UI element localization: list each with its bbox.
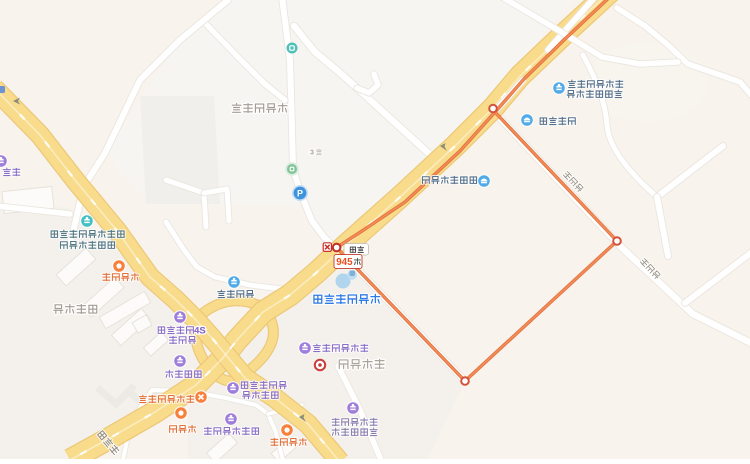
svg-text:4S: 4S bbox=[194, 325, 206, 336]
svg-text:P: P bbox=[297, 188, 303, 198]
svg-text:3: 3 bbox=[310, 148, 314, 157]
svg-text:945: 945 bbox=[336, 257, 353, 268]
